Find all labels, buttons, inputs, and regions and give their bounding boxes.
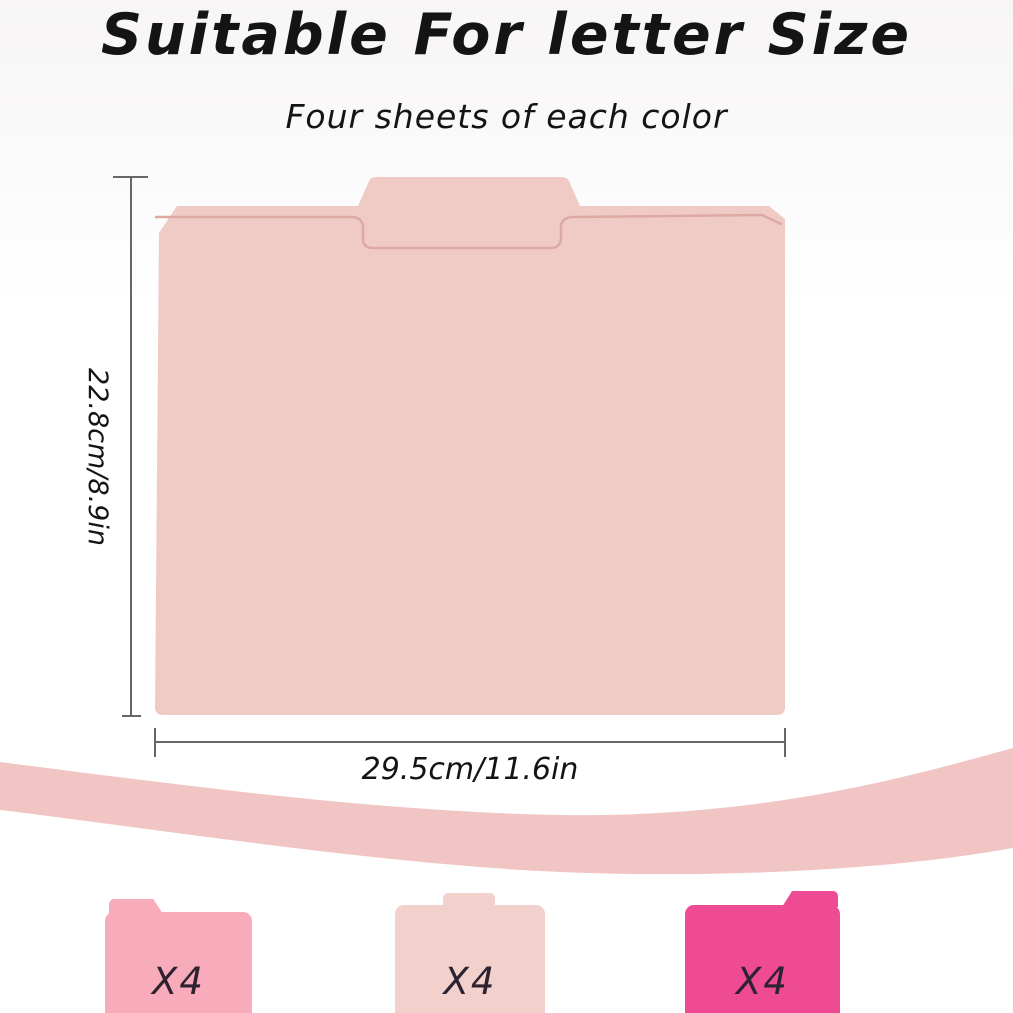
width-dimension-label: 29.5cm/11.6in [155,752,785,787]
folder-body: X4 [395,905,545,1013]
sheet-count-label: X4 [444,905,497,1003]
folder-body: X4 [685,905,840,1013]
sheet-count-label: X4 [152,912,205,1003]
variant-folder-blush: X4 [395,893,545,1013]
product-infographic: Suitable For letter Size Four sheets of … [0,0,1013,1013]
main-folder-graphic [155,177,785,715]
variant-folder-pink: X4 [105,899,252,1013]
folder-diagram [0,0,1013,1013]
height-dimension-label: 22.8cm/8.9in [81,327,113,587]
height-dimension-line [113,177,148,716]
variant-folder-hot-pink: X4 [685,891,840,1013]
sheet-count-label: X4 [736,905,789,1003]
folder-body: X4 [105,912,252,1013]
